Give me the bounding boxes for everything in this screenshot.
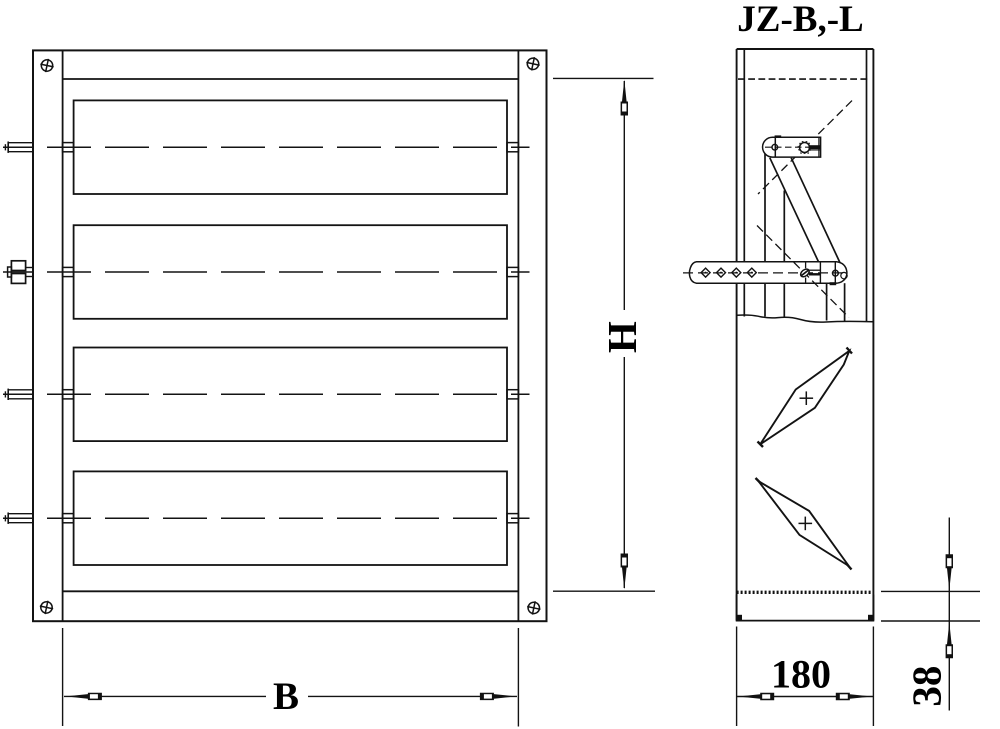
svg-text:38: 38 [904,666,950,707]
svg-text:JZ-B,-L: JZ-B,-L [737,0,863,40]
svg-text:H: H [599,321,645,353]
svg-text:180: 180 [771,652,831,697]
svg-text:B: B [273,675,299,718]
